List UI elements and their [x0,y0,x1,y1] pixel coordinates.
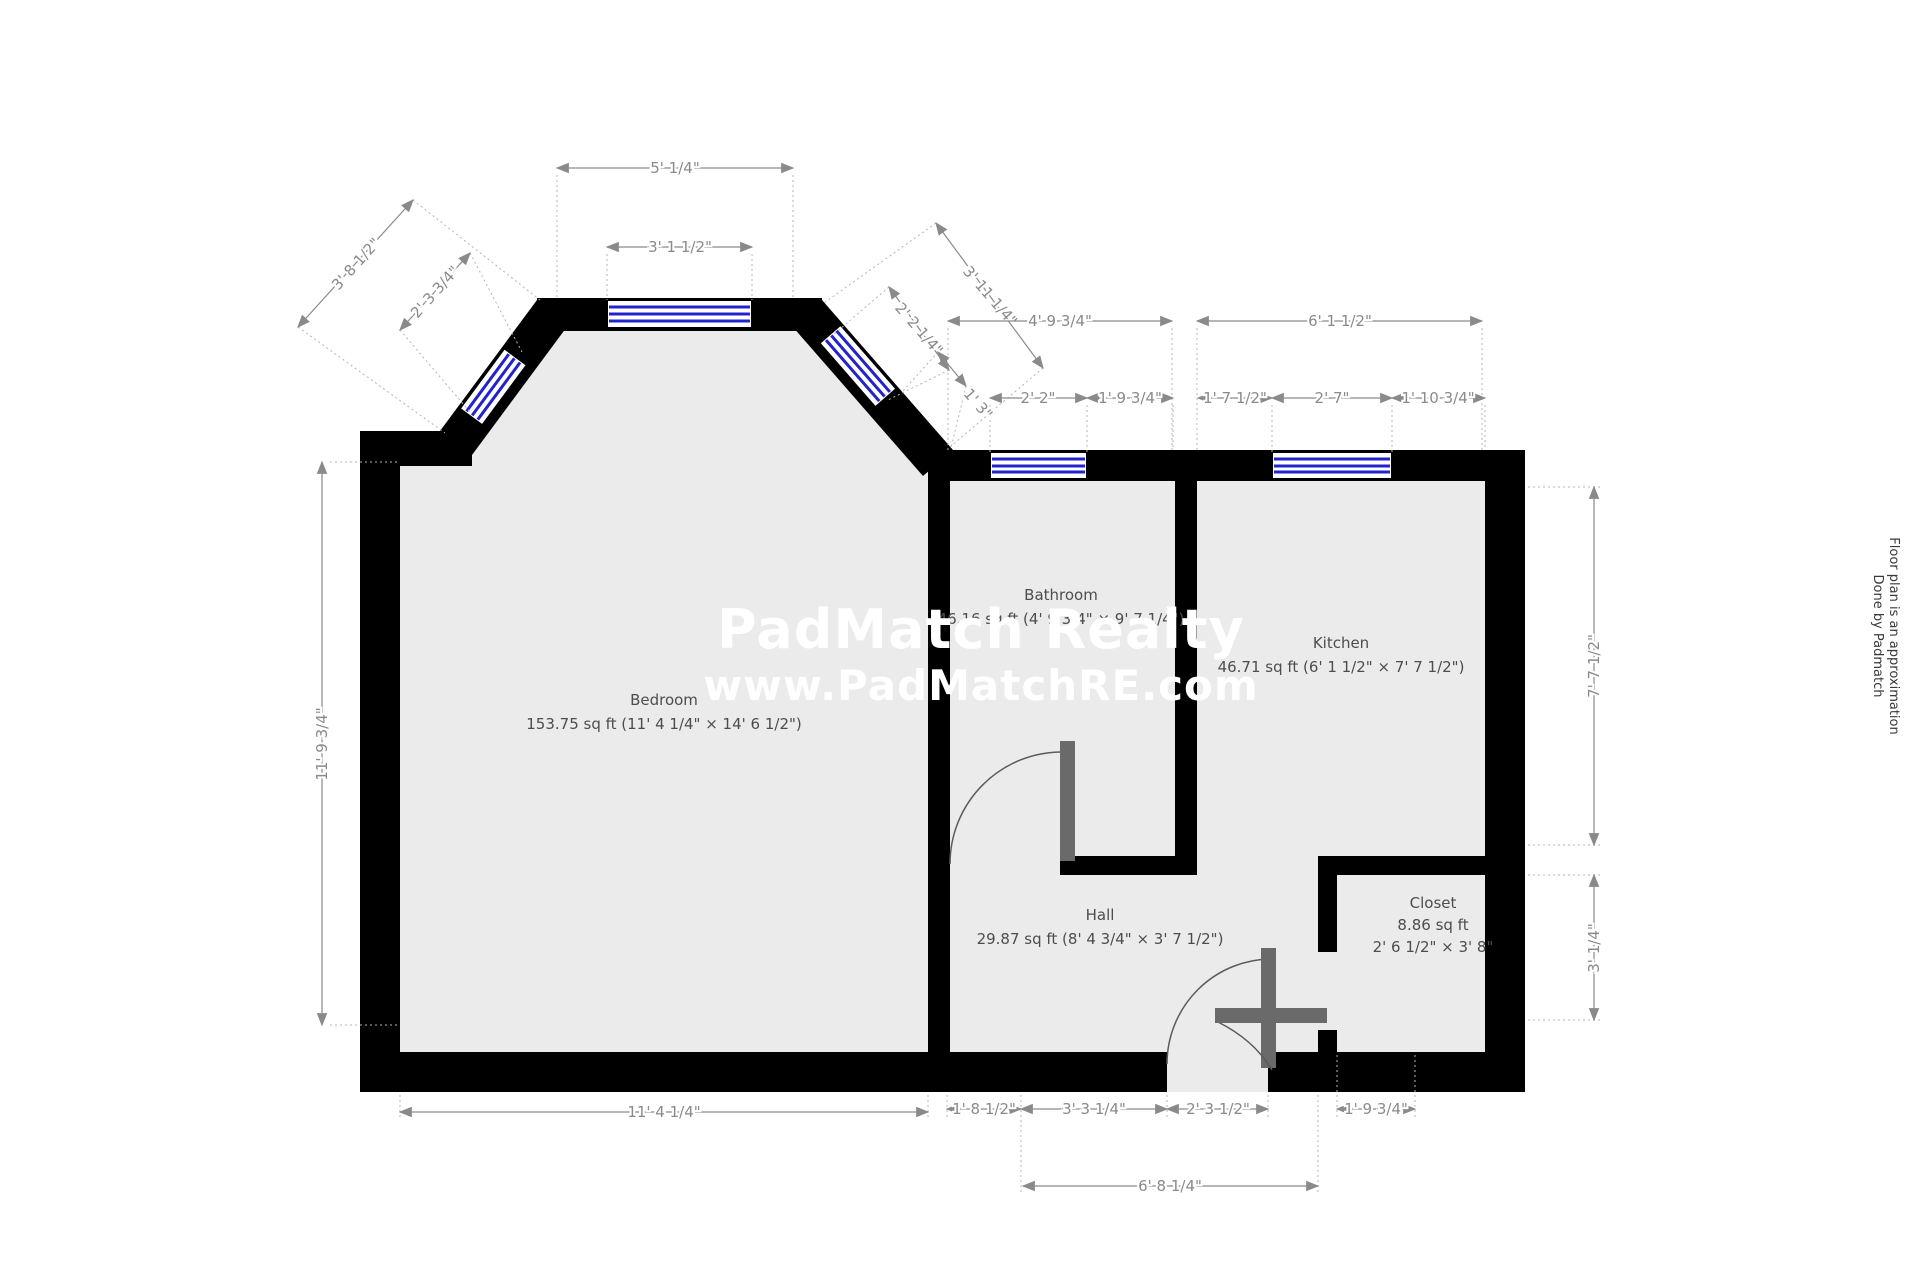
side-note-line2: Done by Padmatch [1870,575,1885,698]
dimension-kitchen-window: 2' 7" [1272,389,1392,407]
wall-closet-left-upper [1318,856,1337,952]
dimension-diag-right-corner: 1' 3" [938,352,996,423]
watermark: PadMatch Realty www.PadMatchRE.com [703,598,1258,710]
dim-label: 6' 1 1/2" [1308,312,1372,330]
dim-label: 1' 8 1/2" [952,1100,1016,1118]
dim-label: 1' 7 1/2" [1203,389,1267,407]
dimension-bath-window-offset: 2' 2" [990,389,1087,407]
side-note-line1: Floor plan is an approximation [1886,537,1901,734]
bathroom-window [990,452,1087,479]
closet-door-leaf [1215,1008,1327,1023]
watermark-line1: PadMatch Realty [717,598,1245,661]
entry-door-opening [1167,1052,1268,1092]
dimension-closet-height: 3' 1/4" [1585,875,1603,1020]
dimension-diag-right-wall: 3' 11 1/4" [936,223,1043,368]
dimension-kitchen-height: 7' 7 1/2" [1585,487,1603,845]
dim-label: 3' 8 1/2" [328,234,384,293]
dimension-entry-door: 2' 3 1/2" [1167,1100,1268,1118]
watermark-line2: www.PadMatchRE.com [703,661,1258,710]
wall-closet-left-lower [1318,1030,1337,1052]
dimension-bay-window: 3' 1 1/2" [607,238,752,256]
dimension-hall-total: 6' 8 1/4" [1023,1177,1318,1195]
dim-label: 2' 3 1/2" [1186,1100,1250,1118]
room-area: 8.86 sq ft [1397,916,1468,934]
side-note: Floor plan is an approximation Done by P… [1870,537,1901,734]
room-name: Kitchen [1313,634,1369,652]
dim-label: 3' 11 1/4" [959,262,1021,329]
dim-label: 1' 10 3/4" [1401,389,1474,407]
dim-label: 1' 9 3/4" [1098,389,1162,407]
wall-closet-top [1318,856,1485,875]
dim-label: 3' 3 1/4" [1062,1100,1126,1118]
dim-label: 1' 9 3/4" [1344,1100,1408,1118]
dimension-kitchen-right-offset: 1' 10 3/4" [1392,389,1485,407]
dimension-bedroom-width: 11' 4 1/4" [400,1103,928,1121]
floor-plan: 5' 1/4" 3' 1 1/2" 3' 8 1/2" 2' 3 3/4" 3'… [0,0,1920,1280]
dimension-kitchen-width: 6' 1 1/2" [1197,312,1482,330]
room-name: Closet [1410,894,1457,912]
kitchen-window [1272,452,1392,479]
dimension-bath-window-right: 1' 9 3/4" [1087,389,1173,407]
dimension-kitchen-left-offset: 1' 7 1/2" [1198,389,1272,407]
dimension-bathroom-width: 4' 9 3/4" [948,312,1172,330]
dim-label: 5' 1/4" [650,159,699,177]
dim-label: 3' 1 1/2" [648,238,712,256]
dimension-bedroom-height: 11' 9 3/4" [313,462,331,1025]
wall-bathroom-bottom [1060,856,1197,875]
dim-label: 11' 4 1/4" [627,1103,700,1121]
dim-label: 1' 3" [960,385,996,423]
dimension-diag-left-window: 2' 3 3/4" [400,253,470,330]
dimension-bay-width: 5' 1/4" [557,159,793,177]
room-name: Hall [1086,906,1115,924]
dimension-hall-left: 1' 8 1/2" [947,1100,1021,1118]
dim-label: 2' 2 1/4" [891,299,946,359]
room-dims: 2' 6 1/2" × 3' 8" [1373,938,1494,956]
wall-bedroom-divider [928,450,950,1052]
wall-bottom [360,1052,1525,1092]
bay-window [607,300,752,328]
dim-label: 2' 3 3/4" [407,262,463,321]
bathroom-door-leaf [1060,741,1075,861]
room-name: Bedroom [630,691,698,709]
dimension-closet-bottom: 1' 9 3/4" [1337,1100,1415,1118]
wall-right [1485,450,1525,1092]
room-area: 153.75 sq ft (11' 4 1/4" × 14' 6 1/2") [526,715,802,733]
dim-label: 2' 2" [1021,389,1056,407]
dimension-diag-left-wall: 3' 8 1/2" [298,200,413,327]
dim-label: 2' 7" [1315,389,1350,407]
dimension-diag-right-window: 2' 2 1/4" [889,287,949,370]
dim-label: 4' 9 3/4" [1028,312,1092,330]
wall-left [360,431,400,1092]
dim-label: 7' 7 1/2" [1585,634,1603,698]
dim-label: 3' 1/4" [1585,923,1603,972]
room-area: 29.87 sq ft (8' 4 3/4" × 3' 7 1/2") [977,930,1224,948]
dim-label: 11' 9 3/4" [313,707,331,780]
dimension-hall-mid: 3' 3 1/4" [1021,1100,1167,1118]
dim-label: 6' 8 1/4" [1138,1177,1202,1195]
